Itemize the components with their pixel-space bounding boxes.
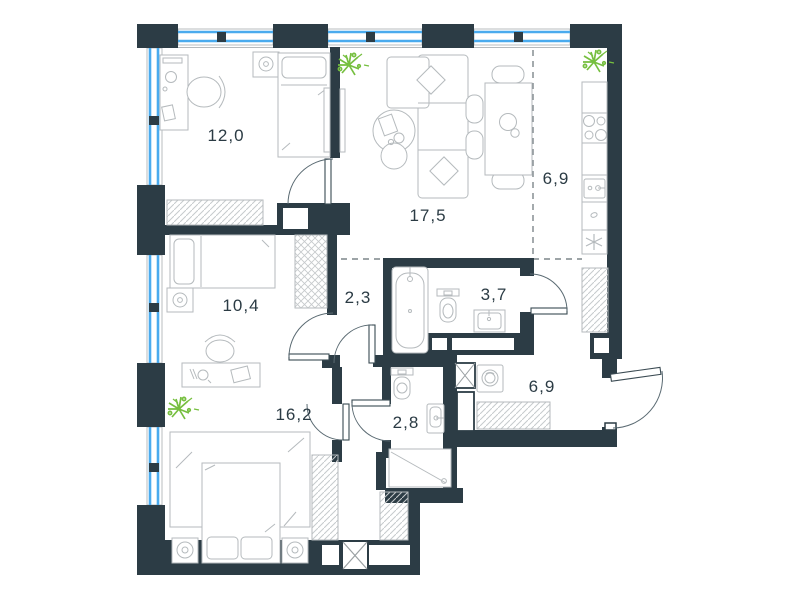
nightstand-icon <box>167 288 193 312</box>
label-shower-room: 2,8 <box>393 413 420 432</box>
room-kitchen <box>582 82 607 254</box>
desk-icon <box>182 363 260 387</box>
wardrobe-icon <box>312 455 338 540</box>
label-bathroom: 3,7 <box>481 285 508 304</box>
door-bedroom-2 <box>289 313 333 360</box>
nightstand-icon <box>253 52 279 77</box>
door-bedroom-1 <box>288 159 333 204</box>
dining-table-icon <box>466 66 532 189</box>
cabinet-icon <box>457 392 474 431</box>
plant-icon <box>338 53 369 75</box>
nightstand-icon <box>282 538 308 563</box>
double-bed-icon <box>202 463 280 563</box>
ventilation-shaft-icon <box>452 338 514 350</box>
tv-panel-icon <box>340 89 345 152</box>
door-shower-room <box>352 400 390 441</box>
door-bedroom-3 <box>307 404 349 440</box>
chair-icon <box>466 95 483 123</box>
wardrobe-icon <box>167 200 263 225</box>
bathtub-icon <box>392 267 428 353</box>
label-bedroom-2: 10,4 <box>222 296 259 315</box>
room-bedroom-1 <box>160 52 330 225</box>
ventilation-shaft-icon <box>322 545 339 565</box>
kitchen-counter-icon <box>582 82 607 254</box>
room-living <box>340 55 532 198</box>
nightstand-icon <box>172 538 198 563</box>
pillow-icon <box>241 537 272 559</box>
floor-plan: 12,0 17,5 6,9 10,4 2,3 3,7 6,9 16,2 2,8 <box>0 0 800 600</box>
door-entry <box>610 367 662 428</box>
wardrobe-icon <box>380 492 408 540</box>
single-bed-icon <box>278 53 330 157</box>
door-corridor <box>334 325 375 363</box>
chair-icon <box>466 131 483 159</box>
ventilation-shaft-icon <box>594 338 609 353</box>
entry-door-stop <box>605 423 616 430</box>
sink-icon <box>427 404 444 433</box>
ventilation-shaft-icon <box>432 338 447 350</box>
ventilation-shaft-icon <box>369 545 410 565</box>
sink-icon <box>474 310 505 332</box>
toilet-icon <box>437 289 459 322</box>
washing-machine-icon <box>477 365 503 392</box>
single-bed-icon <box>170 235 275 288</box>
desk-chair-icon <box>187 76 225 108</box>
door-bathroom <box>530 274 567 314</box>
desk-chair-icon <box>205 335 235 362</box>
label-bedroom-1: 12,0 <box>207 126 244 145</box>
pillow-icon <box>207 537 238 559</box>
window-band-top <box>178 29 570 45</box>
wardrobe-icon <box>477 402 550 429</box>
shaft-x-icon <box>343 542 367 569</box>
label-bedroom-3: 16,2 <box>275 405 312 424</box>
wall-panel-icon <box>324 88 330 152</box>
label-corridor: 2,3 <box>345 288 372 307</box>
coffee-table-icon <box>373 110 415 169</box>
wardrobe-icon <box>582 268 608 332</box>
desk-icon <box>160 55 188 130</box>
plant-icon <box>168 397 199 419</box>
label-kitchen: 6,9 <box>543 169 570 188</box>
ventilation-shaft-icon <box>283 208 308 229</box>
shaft-x-icon <box>455 363 475 388</box>
floor-plan-page: 12,0 17,5 6,9 10,4 2,3 3,7 6,9 16,2 2,8 <box>0 0 800 600</box>
wardrobe-icon <box>295 235 327 308</box>
label-living-room: 17,5 <box>409 206 446 225</box>
toilet-icon <box>391 368 413 399</box>
shower-tray-icon <box>389 449 451 487</box>
label-hallway: 6,9 <box>529 377 556 396</box>
chair-icon <box>492 66 524 83</box>
